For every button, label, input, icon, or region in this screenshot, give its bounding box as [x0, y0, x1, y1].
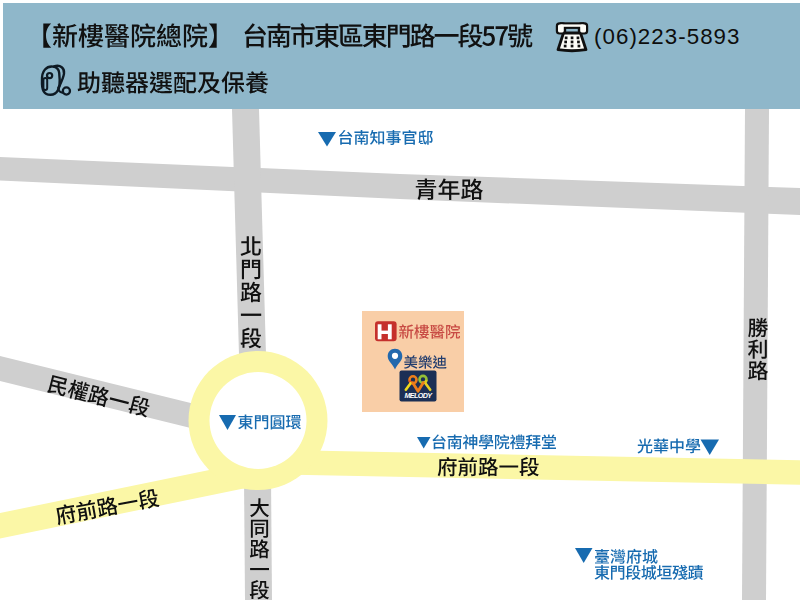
svg-text:MELODY: MELODY: [405, 391, 434, 400]
svg-text:(06)223-5893: (06)223-5893: [594, 24, 740, 49]
